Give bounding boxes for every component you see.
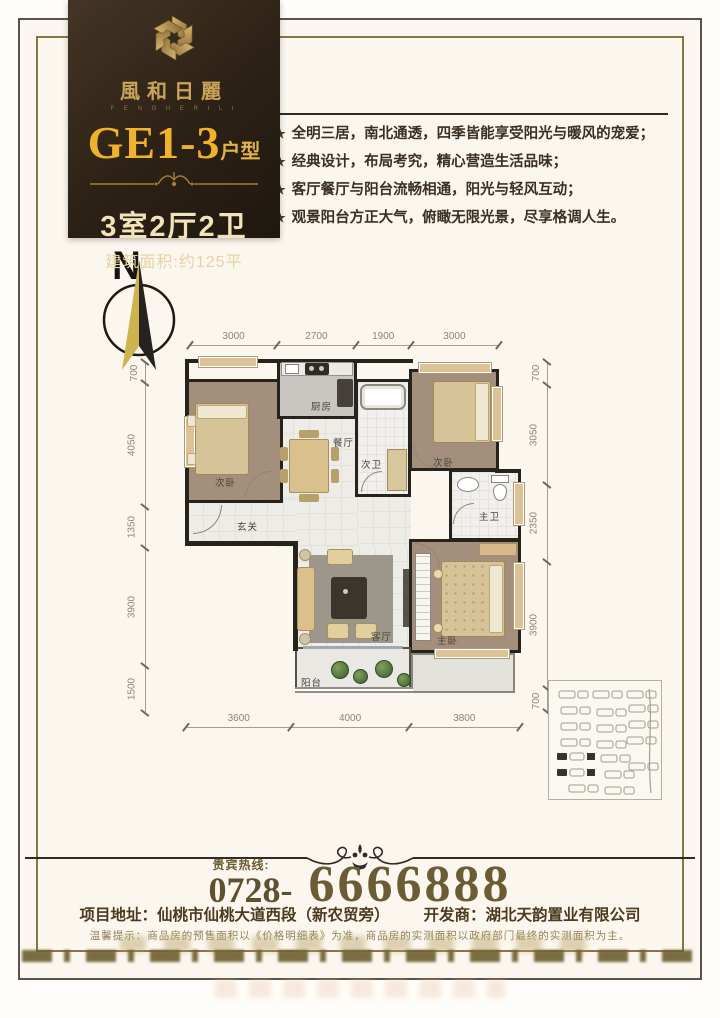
sofa-icon [297, 567, 315, 631]
dimension-left: 7004050135039001500 [130, 362, 146, 712]
watermark-blur-url [215, 980, 505, 998]
dimension-bottom: 360040003800 [186, 712, 520, 728]
area-label: 建筑面积:约125平 [68, 248, 280, 272]
nightstand-icon [187, 415, 196, 427]
feature-item: ★经典设计，布局考究，精心营造生活品味； [274, 148, 674, 176]
plant-icon [331, 661, 349, 679]
feature-item: ★客厅餐厅与阳台流畅相通，阳光与轻风互动； [274, 176, 674, 204]
room-label-bath-master: 主卫 [479, 509, 500, 523]
window-icon [514, 563, 524, 629]
chair-icon [299, 494, 319, 502]
site-map-buildings [549, 681, 661, 799]
address-line: 项目地址：仙桃市仙桃大道西段（新农贸旁）开发商：湖北天韵置业有限公司 [0, 903, 720, 925]
window-icon [435, 649, 509, 658]
pillow-icon [489, 565, 503, 633]
floor-plan: 次卧 厨房 餐厅 次卫 次卧 主卫 玄关 客厅 主卧 阳台 [185, 357, 521, 703]
balcony-door [303, 646, 403, 649]
sink-icon [285, 364, 299, 374]
fridge-icon [337, 379, 353, 407]
room-label-bedroom-left: 次卧 [215, 475, 236, 489]
unit-code: GE1-3 [88, 117, 221, 168]
window-icon [492, 387, 502, 441]
developer-label: 开发商： [424, 907, 486, 924]
window-icon [514, 483, 524, 525]
header-box: 風和日麗 F E N G H E R I L I GE1-3户型 3室2厅2卫 … [68, 0, 280, 238]
armchair-icon [327, 623, 349, 639]
window-icon [199, 357, 257, 367]
feature-text: 全明三居，南北通透，四季皆能享受阳光与暖风的宠爱； [292, 126, 655, 142]
feature-list: ★全明三居，南北通透，四季皆能享受阳光与暖风的宠爱； ★经典设计，布局考究，精心… [274, 120, 674, 232]
room-label-balcony: 阳台 [301, 675, 322, 689]
knot-logo-icon [148, 12, 200, 64]
desk-icon [479, 543, 517, 556]
site-map [548, 680, 662, 800]
brand-logo [68, 12, 280, 69]
plant-icon [375, 660, 393, 678]
dimension-top: 3000270019003000 [190, 330, 498, 346]
burner-icon [319, 366, 324, 371]
address-label: 项目地址： [79, 907, 157, 924]
chair-icon [331, 469, 339, 483]
side-table-icon [299, 549, 311, 561]
stool-icon [433, 623, 443, 633]
hotline-left: 贵宾热线: 0728- [209, 856, 293, 907]
feature-item: ★观景阳台方正大气，俯瞰无限光景，尽享格调人生。 [274, 204, 674, 232]
wall-segment [185, 541, 297, 546]
sink-icon [457, 477, 479, 492]
room-label-entry: 玄关 [237, 519, 258, 533]
hotline-block: 贵宾热线: 0728- 6666888 [0, 856, 720, 907]
compass-icon [92, 258, 187, 378]
room-label-dining: 餐厅 [333, 435, 354, 449]
chair-icon [280, 447, 288, 461]
developer-value: 湖北天韵置业有限公司 [486, 907, 641, 924]
washer-icon [387, 449, 407, 491]
unit-suffix: 户型 [220, 141, 260, 163]
watermark-blur-main [22, 950, 698, 962]
burner-icon [309, 366, 314, 371]
plant-icon [397, 673, 411, 687]
feature-text: 观景阳台方正大气，俯瞰无限光景，尽享格调人生。 [292, 210, 626, 226]
chair-icon [331, 447, 339, 461]
feature-text: 经典设计，布局考究，精心营造生活品味； [292, 154, 568, 170]
feature-item: ★全明三居，南北通透，四季皆能享受阳光与暖风的宠爱； [274, 120, 674, 148]
address-value: 仙桃市仙桃大道西段（新农贸旁） [157, 907, 390, 924]
room-spec: 3室2厅2卫 [68, 203, 280, 245]
nightstand-icon [187, 453, 196, 465]
pillow-icon [475, 383, 489, 441]
room-label-bedroom-right: 次卧 [433, 455, 454, 469]
hotline-number: 6666888 [309, 863, 512, 907]
armchair-icon [327, 549, 353, 565]
chair-icon [280, 469, 288, 483]
dimension-right: 700305023503900700 [532, 362, 548, 712]
decor-icon [343, 589, 348, 594]
feature-text: 客厅餐厅与阳台流畅相通，阳光与轻风互动； [292, 182, 582, 198]
coffee-table-icon [331, 577, 367, 619]
corridor-floor [357, 495, 411, 547]
chair-icon [299, 430, 319, 438]
stool-icon [433, 569, 443, 579]
room-label-kitchen: 厨房 [311, 399, 332, 413]
header-flourish [68, 168, 280, 197]
feature-divider [272, 113, 668, 115]
pillow-icon [197, 405, 247, 419]
room-label-bath-second: 次卫 [361, 457, 382, 471]
dining-table [289, 439, 329, 493]
plant-icon [353, 669, 368, 684]
wall-segment [495, 469, 521, 473]
side-table-icon [299, 633, 311, 645]
brand-name: 風和日麗 [68, 75, 280, 104]
room-label-bedroom-master: 主卧 [437, 633, 458, 647]
bathtub-icon [360, 384, 406, 410]
window-icon [419, 363, 491, 373]
flower-bed [411, 653, 515, 693]
tv-cabinet-icon [403, 569, 409, 627]
unit-title: GE1-3户型 [68, 120, 280, 166]
room-label-living: 客厅 [371, 629, 392, 643]
brand-subtitle: F E N G H E R I L I [68, 106, 280, 112]
wardrobe-icon [415, 553, 431, 641]
toilet-icon [491, 475, 509, 483]
